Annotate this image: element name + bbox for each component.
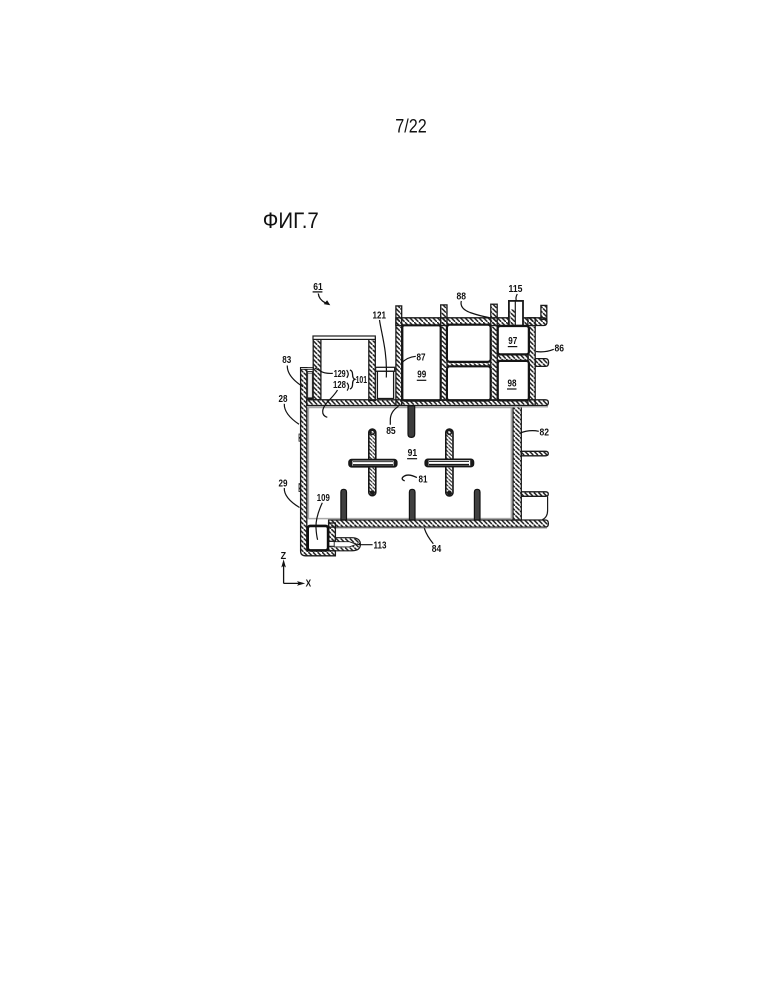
svg-text:109: 109 (317, 492, 330, 504)
svg-text:28: 28 (279, 393, 288, 405)
svg-text:128: 128 (333, 379, 346, 391)
svg-text:ФИГ.7: ФИГ.7 (263, 208, 319, 233)
svg-text:87: 87 (417, 351, 426, 363)
svg-text:83: 83 (282, 354, 291, 366)
svg-text:86: 86 (555, 343, 565, 355)
svg-text:84: 84 (432, 543, 442, 555)
svg-text:97: 97 (508, 335, 517, 347)
svg-text:82: 82 (540, 426, 550, 438)
svg-text:7/22: 7/22 (395, 116, 427, 138)
svg-text:99: 99 (417, 369, 426, 381)
svg-text:X: X (306, 578, 312, 590)
svg-text:113: 113 (374, 539, 387, 551)
svg-text:Z: Z (281, 550, 287, 562)
svg-text:115: 115 (509, 283, 523, 295)
svg-text:85: 85 (386, 425, 396, 437)
svg-text:98: 98 (508, 377, 517, 389)
svg-text:88: 88 (457, 291, 467, 303)
svg-text:91: 91 (408, 447, 418, 459)
svg-text:29: 29 (279, 477, 288, 489)
svg-text:121: 121 (373, 309, 387, 321)
svg-text:81: 81 (419, 473, 428, 485)
svg-text:101: 101 (356, 374, 368, 386)
